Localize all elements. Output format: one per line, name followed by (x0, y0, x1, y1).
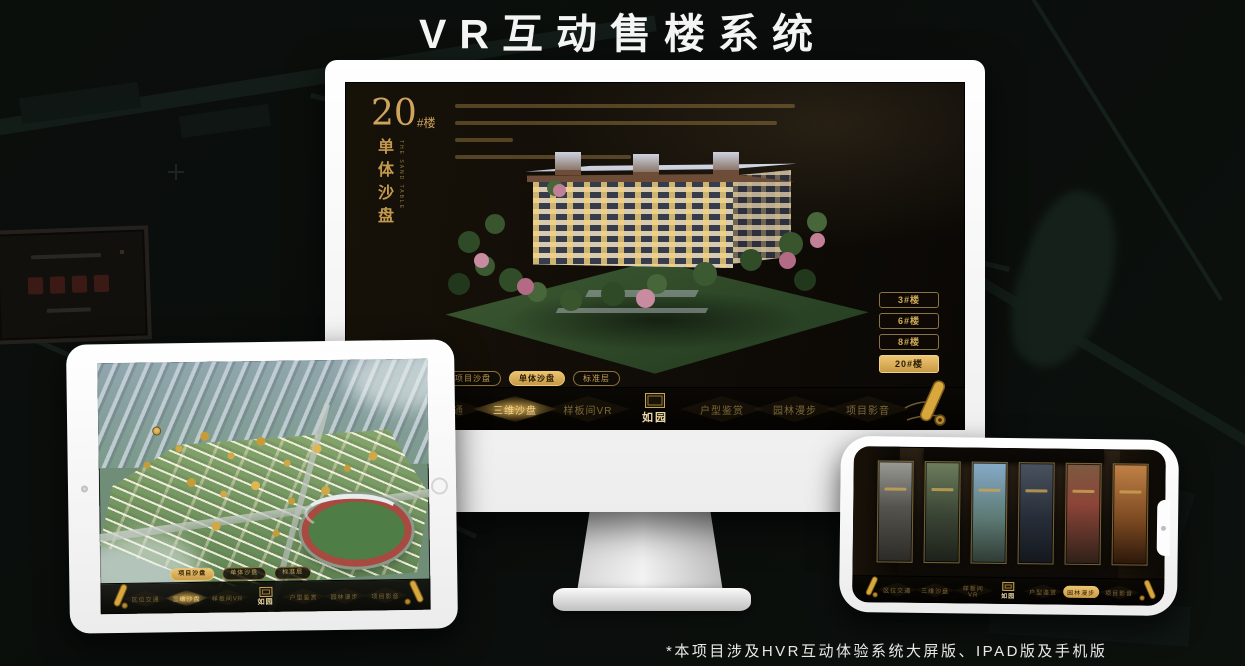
building-markers[interactable] (152, 426, 161, 435)
monitor-stand-base (553, 588, 751, 611)
gallery-panel[interactable] (971, 462, 1008, 564)
model-shadow (507, 290, 807, 350)
floor-button-6[interactable]: 6#楼 (879, 313, 939, 329)
building-subtitle-en: THE SAND TABLE (398, 140, 404, 230)
logo-seal-icon (259, 587, 272, 597)
page-title: VR互动售楼系统 (0, 0, 1245, 60)
nav-floorplan-gallery[interactable]: 户型鉴赏 (693, 402, 751, 417)
gallery-panel[interactable] (924, 461, 961, 563)
model-roof-cap (555, 152, 581, 175)
logo-text: 如园 (642, 409, 668, 425)
model-roof-cap (713, 152, 739, 175)
model-trees-pink (553, 184, 566, 197)
building-number: 20 (371, 96, 417, 132)
model-roof-cap (633, 154, 659, 177)
tablet-navbar: 区位交通 三维沙盘 样板间VR 如园 户型鉴赏 园林漫步 项目影音 (100, 579, 430, 615)
background-plaque (0, 225, 152, 344)
logo-text: 如园 (258, 597, 274, 607)
phone-navbar: 区位交通 三维沙盘 样板间VR 如园 户型鉴赏 园林漫步 项目影音 (852, 575, 1164, 606)
floor-button-20[interactable]: 20#楼 (879, 355, 939, 373)
model-building-side (733, 170, 791, 264)
scroll-icon[interactable] (858, 574, 880, 600)
scroll-icon[interactable] (400, 578, 426, 608)
logo-seal-icon (645, 393, 665, 408)
logo-text: 如园 (1001, 591, 1015, 600)
building-subtitle: 单体沙盘 (371, 138, 395, 230)
scroll-icon[interactable] (1136, 578, 1158, 604)
tab-project-sandbox[interactable]: 项目沙盘 (170, 568, 214, 582)
page: VR互动售楼系统 20#楼 单体沙盘 THE SAND TABLE (0, 0, 1245, 666)
nav-location-traffic[interactable]: 区位交通 (129, 594, 161, 603)
nav-project-media[interactable]: 项目影音 (369, 591, 401, 600)
logo-seal-icon (1002, 582, 1014, 591)
tablet-view-tab-group: 项目沙盘 单体沙盘 标准层 (170, 566, 311, 581)
ruyuan-logo: 如园 (252, 587, 278, 607)
nav-project-media[interactable]: 项目影音 (1104, 588, 1134, 597)
nav-showroom-vr[interactable]: 样板间VR (958, 583, 988, 598)
nav-project-media[interactable]: 项目影音 (839, 402, 897, 417)
tablet-home-button[interactable] (431, 477, 448, 494)
nav-garden-walk[interactable]: 园林漫步 (328, 591, 360, 600)
compass-icon (168, 164, 184, 180)
model-path (556, 308, 709, 313)
tablet-device: 项目沙盘 单体沙盘 标准层 区位交通 三维沙盘 样板间VR 如园 户型鉴赏 园林… (66, 339, 458, 633)
gallery-panel[interactable] (1018, 462, 1055, 564)
view-tab-group: 项目沙盘 单体沙盘 标准层 (445, 371, 620, 386)
building-unit: #楼 (417, 116, 436, 130)
tab-single-sandbox[interactable]: 单体沙盘 (222, 567, 266, 581)
model-path (585, 290, 699, 297)
scroll-icon[interactable] (104, 582, 130, 612)
phone-camera (1161, 526, 1166, 531)
scroll-icon[interactable] (903, 378, 951, 430)
map-block (179, 104, 271, 138)
gallery-panel[interactable] (1112, 463, 1149, 565)
nav-location-traffic[interactable]: 区位交通 (882, 585, 912, 594)
phone-screen: 区位交通 三维沙盘 样板间VR 如园 户型鉴赏 园林漫步 项目影音 (852, 446, 1166, 606)
nav-3d-sandbox[interactable]: 三维沙盘 (170, 593, 202, 602)
nav-garden-walk[interactable]: 园林漫步 (766, 402, 824, 417)
floor-button-group: 3#楼 6#楼 8#楼 20#楼 (879, 292, 939, 373)
phone-notch (1157, 500, 1171, 556)
tab-standard-floor[interactable]: 标准层 (573, 371, 620, 386)
tab-single-sandbox[interactable]: 单体沙盘 (509, 371, 565, 386)
nav-showroom-vr[interactable]: 样板间VR (211, 593, 243, 602)
monitor-stand-neck (577, 508, 723, 592)
gallery-panel[interactable] (1065, 463, 1102, 565)
phone-device: 区位交通 三维沙盘 样板间VR 如园 户型鉴赏 园林漫步 项目影音 (839, 436, 1179, 616)
floor-button-8[interactable]: 8#楼 (879, 334, 939, 350)
nav-3d-sandbox[interactable]: 三维沙盘 (486, 402, 544, 417)
nav-3d-sandbox[interactable]: 三维沙盘 (920, 585, 950, 594)
nav-garden-walk[interactable]: 园林漫步 (1066, 587, 1096, 596)
panorama-gallery (877, 460, 1149, 565)
nav-floorplan-gallery[interactable]: 户型鉴赏 (1028, 587, 1058, 596)
map-speck (120, 250, 124, 254)
building-heading: 20#楼 单体沙盘 THE SAND TABLE (371, 96, 436, 230)
floor-button-3[interactable]: 3#楼 (879, 292, 939, 308)
gallery-panel[interactable] (877, 460, 914, 562)
ruyuan-logo: 如园 (996, 582, 1020, 600)
footnote: *本项目涉及HVR互动体验系统大屏版、IPAD版及手机版 (666, 640, 1107, 661)
tab-standard-floor[interactable]: 标准层 (274, 566, 311, 580)
nav-showroom-vr[interactable]: 样板间VR (559, 402, 617, 417)
tablet-camera (81, 485, 88, 492)
map-river (992, 180, 1138, 380)
nav-floorplan-gallery[interactable]: 户型鉴赏 (287, 592, 319, 601)
ruyuan-logo: 如园 (632, 393, 678, 425)
tablet-screen: 项目沙盘 单体沙盘 标准层 区位交通 三维沙盘 样板间VR 如园 户型鉴赏 园林… (97, 359, 430, 615)
building-3d-model[interactable] (437, 140, 873, 380)
